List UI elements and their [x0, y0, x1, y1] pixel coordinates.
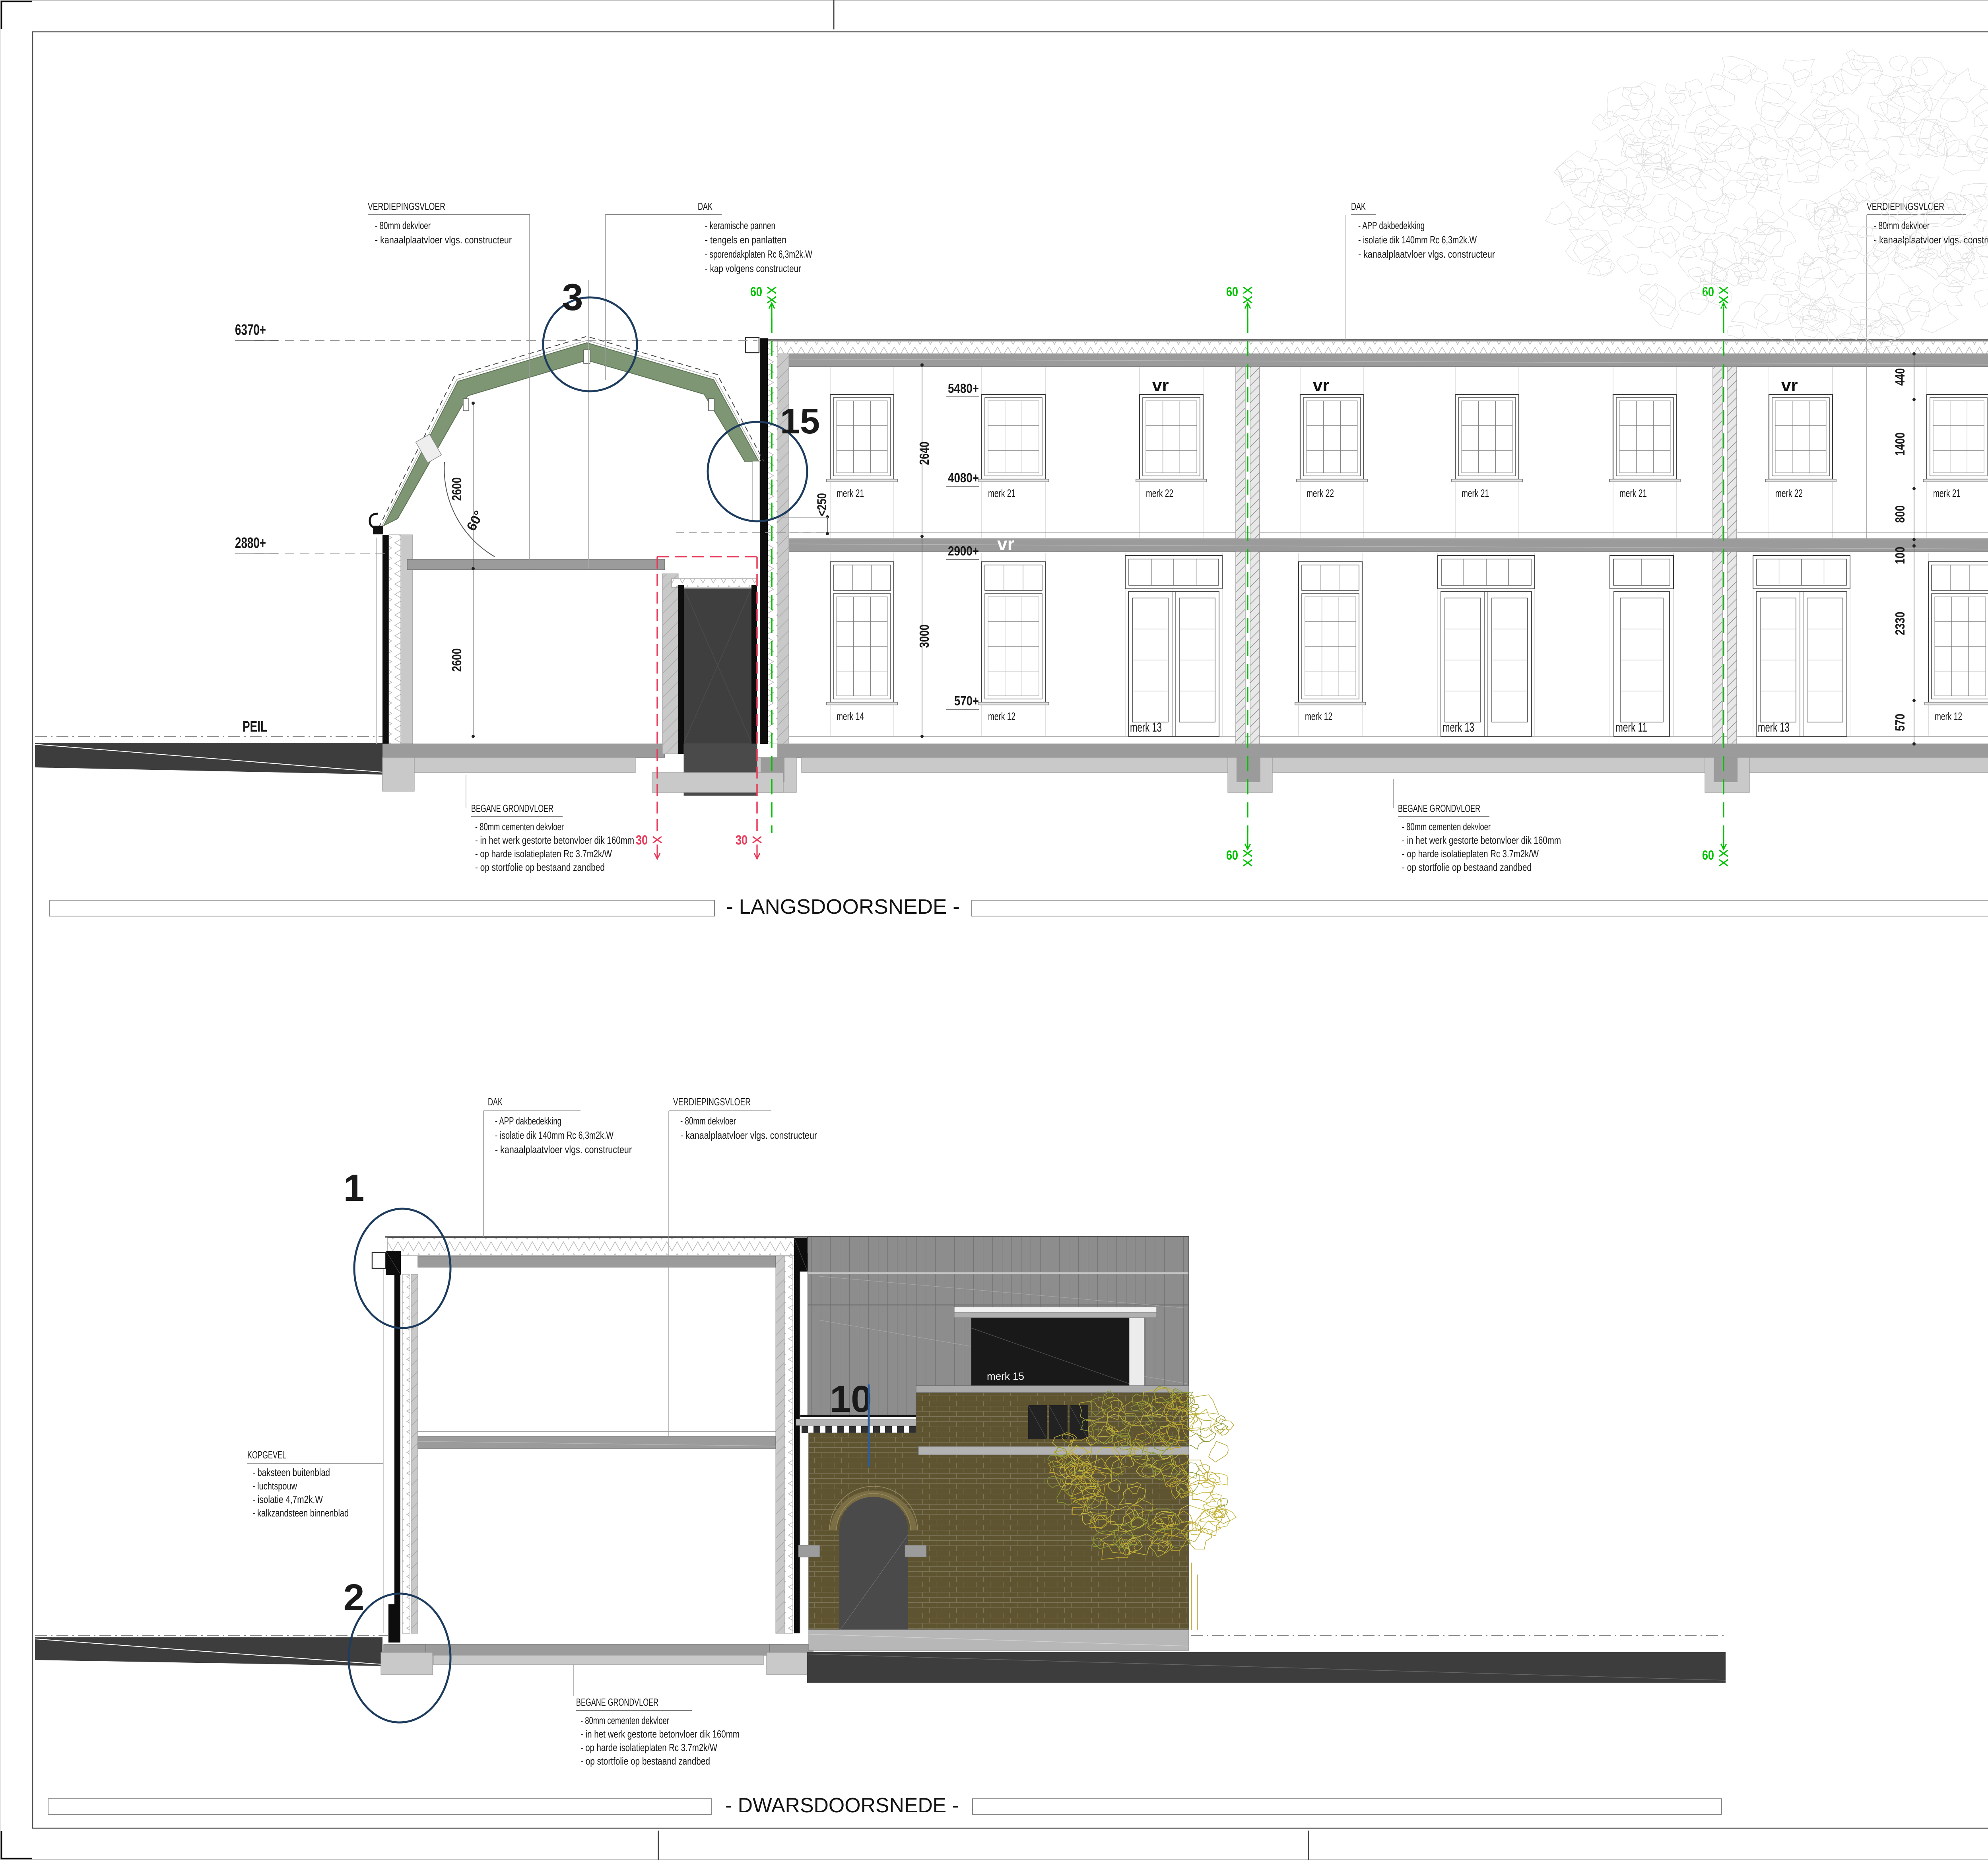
svg-text:1400: 1400: [1893, 433, 1907, 456]
svg-text:merk 22: merk 22: [1146, 487, 1173, 499]
svg-text:vr: vr: [1152, 376, 1169, 395]
svg-text:6370+: 6370+: [235, 322, 266, 338]
svg-text:2600: 2600: [449, 478, 464, 501]
svg-text:merk 21: merk 21: [1462, 487, 1489, 499]
svg-text:- tengels en panlatten: - tengels en panlatten: [705, 234, 786, 246]
svg-text:570+: 570+: [954, 693, 979, 708]
svg-text:60: 60: [1226, 284, 1238, 299]
svg-text:60: 60: [750, 284, 762, 299]
svg-text:merk 13: merk 13: [1130, 720, 1162, 734]
svg-text:5480+: 5480+: [948, 381, 979, 396]
svg-text:KOPGEVEL: KOPGEVEL: [247, 1449, 286, 1461]
svg-text:- in het werk gestorte betonvl: - in het werk gestorte betonvloer dik 16…: [580, 1728, 740, 1740]
svg-text:1: 1: [344, 1167, 365, 1209]
svg-text:100: 100: [1893, 547, 1907, 564]
svg-text:- 80mm dekvloer: - 80mm dekvloer: [680, 1115, 736, 1127]
svg-text:- 80mm dekvloer: - 80mm dekvloer: [375, 219, 431, 231]
svg-text:- isolatie dik 140mm Rc 6,3m2k: - isolatie dik 140mm Rc 6,3m2k.W: [1358, 234, 1477, 246]
svg-text:4080+: 4080+: [948, 470, 979, 485]
svg-text:- kanaalplaatvloer vlgs. const: - kanaalplaatvloer vlgs. constructeur: [1358, 248, 1495, 260]
svg-text:VERDIEPINGSVLOER: VERDIEPINGSVLOER: [368, 200, 445, 212]
svg-text:merk 12: merk 12: [988, 710, 1015, 722]
svg-text:- keramische pannen: - keramische pannen: [705, 219, 775, 231]
svg-text:- op stortfolie op bestaand za: - op stortfolie op bestaand zandbed: [1402, 861, 1532, 873]
svg-text:3: 3: [562, 276, 583, 318]
svg-text:- 80mm dekvloer: - 80mm dekvloer: [1874, 219, 1930, 231]
svg-text:merk 14: merk 14: [837, 710, 864, 722]
svg-text:merk 22: merk 22: [1307, 487, 1334, 499]
svg-text:30: 30: [636, 833, 648, 847]
svg-text:2: 2: [344, 1577, 365, 1619]
svg-text:- APP dakbedekking: - APP dakbedekking: [495, 1115, 561, 1127]
svg-text:- kanaalplaatvloer vlgs. const: - kanaalplaatvloer vlgs. constructeur: [375, 234, 512, 246]
svg-text:BEGANE GRONDVLOER: BEGANE GRONDVLOER: [576, 1696, 658, 1708]
svg-text:merk 13: merk 13: [1442, 720, 1474, 734]
svg-text:- op stortfolie op bestaand za: - op stortfolie op bestaand zandbed: [475, 861, 605, 873]
svg-text:- op harde isolatieplaten Rc 3: - op harde isolatieplaten Rc 3.7m2k/W: [580, 1742, 717, 1753]
svg-text:- 80mm cementen dekvloer: - 80mm cementen dekvloer: [1402, 821, 1491, 833]
svg-text:merk 21: merk 21: [1619, 487, 1647, 499]
svg-text:<250: <250: [815, 493, 829, 516]
svg-text:3000: 3000: [917, 625, 932, 648]
svg-text:BEGANE GRONDVLOER: BEGANE GRONDVLOER: [1398, 802, 1480, 814]
svg-text:2640: 2640: [917, 442, 932, 465]
svg-text:merk 22: merk 22: [1775, 487, 1803, 499]
svg-text:2600: 2600: [449, 648, 464, 672]
svg-text:- isolatie 4,7m2k.W: - isolatie 4,7m2k.W: [252, 1493, 323, 1505]
svg-text:merk 11: merk 11: [1615, 720, 1647, 734]
svg-text:- sporendakplaten Rc 6,3m2k.W: - sporendakplaten Rc 6,3m2k.W: [705, 248, 812, 260]
svg-text:- in het werk gestorte betonvl: - in het werk gestorte betonvloer dik 16…: [1402, 834, 1561, 846]
svg-text:DAK: DAK: [1351, 200, 1366, 212]
svg-text:merk 13: merk 13: [1758, 720, 1790, 734]
svg-text:- in het werk gestorte betonvl: - in het werk gestorte betonvloer dik 16…: [475, 834, 634, 846]
svg-text:- kalkzandsteen binnenblad: - kalkzandsteen binnenblad: [252, 1507, 349, 1519]
svg-text:BEGANE GRONDVLOER: BEGANE GRONDVLOER: [471, 802, 553, 814]
svg-text:- op harde isolatieplaten Rc 3: - op harde isolatieplaten Rc 3.7m2k/W: [475, 848, 612, 860]
svg-text:- isolatie dik 140mm Rc 6,3m2k: - isolatie dik 140mm Rc 6,3m2k.W: [495, 1129, 613, 1141]
svg-text:- 80mm cementen dekvloer: - 80mm cementen dekvloer: [475, 821, 564, 833]
svg-text:60°: 60°: [464, 508, 487, 533]
svg-text:440: 440: [1893, 368, 1907, 386]
svg-text:- kap volgens constructeur: - kap volgens constructeur: [705, 262, 801, 274]
svg-text:merk 21: merk 21: [1933, 487, 1961, 499]
svg-text:2880+: 2880+: [235, 535, 266, 551]
svg-text:- kanaalplaatvloer vlgs. const: - kanaalplaatvloer vlgs. constructeur: [1874, 234, 1988, 246]
svg-text:- APP dakbedekking: - APP dakbedekking: [1358, 219, 1425, 231]
svg-text:merk 12: merk 12: [1305, 710, 1332, 722]
svg-text:PEIL: PEIL: [243, 718, 267, 735]
svg-text:merk 15: merk 15: [987, 1370, 1024, 1382]
svg-text:60: 60: [1226, 848, 1238, 862]
svg-text:2330: 2330: [1893, 612, 1907, 635]
svg-text:- DWARSDOORSNEDE -: - DWARSDOORSNEDE -: [725, 1794, 959, 1817]
svg-text:- kanaalplaatvloer vlgs. const: - kanaalplaatvloer vlgs. constructeur: [680, 1129, 817, 1141]
svg-text:- op harde isolatieplaten Rc 3: - op harde isolatieplaten Rc 3.7m2k/W: [1402, 848, 1539, 860]
svg-text:VERDIEPINGSVLOER: VERDIEPINGSVLOER: [673, 1096, 751, 1108]
svg-text:- baksteen buitenblad: - baksteen buitenblad: [252, 1466, 330, 1478]
svg-text:- luchtspouw: - luchtspouw: [252, 1480, 297, 1492]
svg-text:60: 60: [1702, 848, 1714, 862]
svg-text:merk 21: merk 21: [988, 487, 1015, 499]
svg-text:- 80mm cementen dekvloer: - 80mm cementen dekvloer: [580, 1714, 669, 1726]
svg-text:10: 10: [830, 1378, 872, 1420]
svg-text:DAK: DAK: [488, 1096, 503, 1108]
svg-text:30: 30: [736, 833, 747, 847]
svg-text:vr: vr: [997, 534, 1015, 554]
svg-text:60: 60: [1702, 284, 1714, 299]
svg-text:570: 570: [1893, 714, 1907, 731]
svg-text:merk 12: merk 12: [1935, 710, 1962, 722]
svg-text:merk 21: merk 21: [837, 487, 864, 499]
svg-text:2900+: 2900+: [948, 544, 979, 558]
svg-text:800: 800: [1893, 505, 1907, 523]
svg-text:- op stortfolie op bestaand za: - op stortfolie op bestaand zandbed: [580, 1755, 710, 1767]
svg-text:15: 15: [780, 402, 820, 441]
svg-text:vr: vr: [1313, 376, 1330, 395]
svg-text:DAK: DAK: [698, 200, 712, 212]
svg-text:vr: vr: [1781, 376, 1798, 395]
svg-text:- LANGSDOORSNEDE -: - LANGSDOORSNEDE -: [726, 895, 960, 918]
svg-text:- kanaalplaatvloer vlgs. const: - kanaalplaatvloer vlgs. constructeur: [495, 1144, 632, 1155]
